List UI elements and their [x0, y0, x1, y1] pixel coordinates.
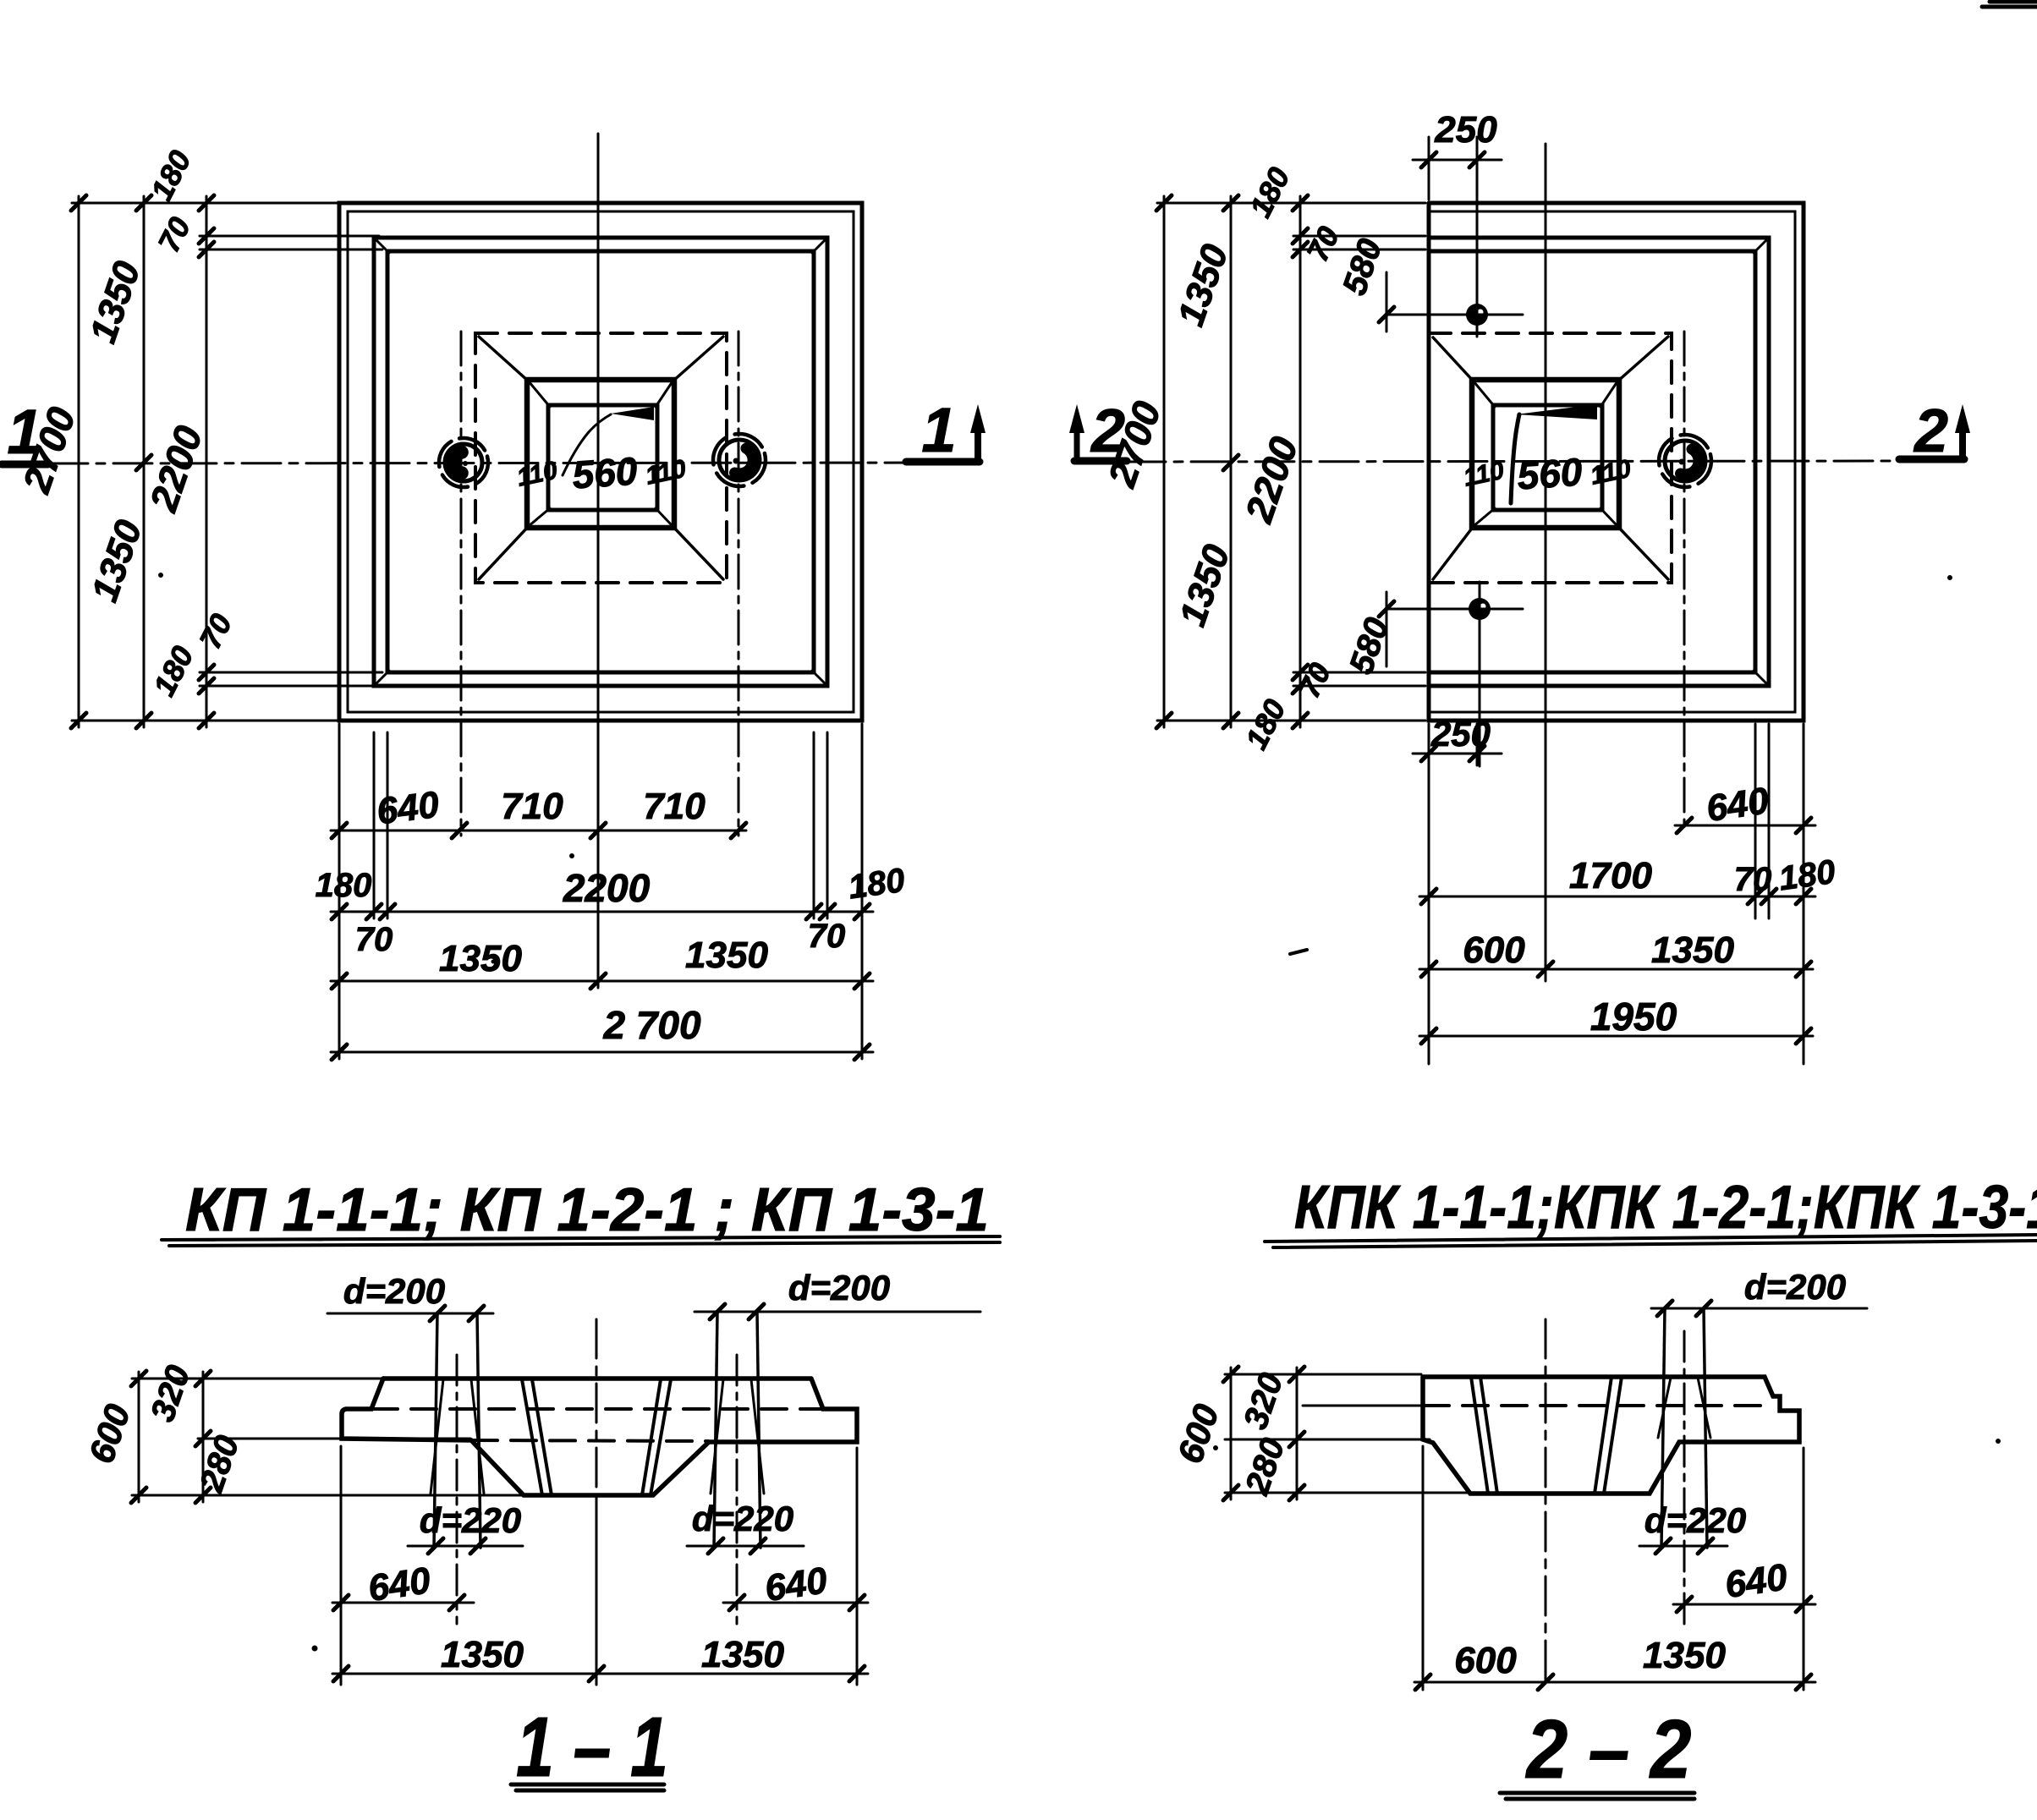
svg-text:1350: 1350 — [701, 1634, 784, 1675]
svg-text:250: 250 — [1434, 109, 1497, 151]
svg-text:d=200: d=200 — [788, 1268, 890, 1307]
svg-text:1: 1 — [7, 397, 41, 467]
svg-text:КПК 1-1-1;КПК 1-2-1;КПК 1-3-1: КПК 1-1-1;КПК 1-2-1;КПК 1-3-1 — [1294, 1174, 2037, 1242]
svg-text:2200: 2200 — [563, 866, 651, 910]
svg-text:600: 600 — [1454, 1640, 1517, 1681]
svg-text:1350: 1350 — [1651, 929, 1734, 971]
svg-text:1350: 1350 — [441, 1634, 524, 1675]
svg-text:180: 180 — [1776, 853, 1837, 898]
svg-text:640: 640 — [365, 1560, 433, 1609]
svg-text:1 – 1: 1 – 1 — [516, 1700, 668, 1795]
svg-text:d=220: d=220 — [692, 1499, 793, 1538]
svg-text:1350: 1350 — [439, 938, 522, 979]
svg-text:1700: 1700 — [1569, 855, 1652, 896]
svg-text:640: 640 — [375, 784, 442, 833]
svg-text:640: 640 — [1722, 1556, 1790, 1606]
svg-text:КП 1-1-1; КП 1-2-1 ; КП 1-3-1: КП 1-1-1; КП 1-2-1 ; КП 1-3-1 — [185, 1176, 989, 1244]
svg-text:70: 70 — [355, 921, 393, 958]
svg-text:180: 180 — [316, 867, 372, 904]
svg-text:250: 250 — [1430, 714, 1491, 754]
svg-text:70: 70 — [808, 918, 846, 955]
svg-text:1350: 1350 — [1643, 1635, 1726, 1676]
svg-text:710: 710 — [501, 786, 563, 827]
svg-text:d=220: d=220 — [1644, 1500, 1746, 1540]
svg-text:1350: 1350 — [685, 935, 768, 976]
svg-text:640: 640 — [1704, 780, 1771, 830]
svg-text:640: 640 — [762, 1560, 830, 1609]
svg-text:2: 2 — [1913, 397, 1948, 465]
svg-text:560: 560 — [1516, 449, 1584, 497]
svg-text:2 – 2: 2 – 2 — [1525, 1702, 1692, 1795]
svg-text:710: 710 — [643, 786, 706, 827]
svg-text:d=200: d=200 — [1744, 1267, 1846, 1307]
svg-text:2: 2 — [1090, 397, 1125, 465]
svg-text:560: 560 — [571, 448, 640, 496]
svg-text:d=200: d=200 — [343, 1271, 445, 1311]
svg-text:180: 180 — [846, 862, 907, 907]
svg-text:2 700: 2 700 — [602, 1003, 701, 1047]
svg-text:d=220: d=220 — [420, 1500, 521, 1540]
svg-text:600: 600 — [1463, 929, 1525, 971]
svg-text:70: 70 — [1734, 861, 1772, 898]
svg-text:1: 1 — [921, 395, 956, 465]
svg-text:1950: 1950 — [1590, 995, 1677, 1039]
